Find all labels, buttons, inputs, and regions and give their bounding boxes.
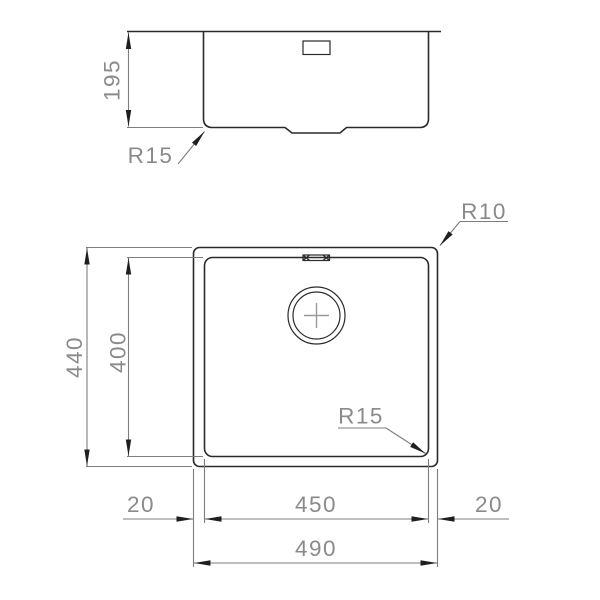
sink-technical-drawing: 195 R15 440 — [0, 0, 600, 600]
dim-right-margin: 20 — [438, 492, 509, 519]
plan-outer-radius-callout: R10 — [440, 199, 508, 246]
dim-inner-height-label: 400 — [105, 331, 130, 373]
dim-inner-height: 400 — [105, 258, 203, 457]
plan-inner-radius-label: R15 — [338, 404, 384, 429]
side-corner-radius-label: R15 — [128, 143, 174, 168]
plan-inner-radius-callout: R15 — [338, 404, 426, 454]
dim-inner-width-label: 450 — [295, 492, 337, 517]
plan-inner-radius-leader — [386, 428, 426, 454]
side-bowl-outline — [204, 32, 429, 134]
dim-left-margin-label: 20 — [127, 492, 155, 517]
dim-depth-label: 195 — [99, 59, 124, 101]
drawing-canvas: 195 R15 440 — [0, 0, 600, 600]
dim-outer-width-label: 490 — [295, 536, 337, 561]
dim-inner-width: 450 — [205, 492, 428, 519]
dim-outer-height-label: 440 — [62, 336, 87, 378]
dim-outer-width: 490 — [194, 536, 437, 563]
side-overflow-rect — [303, 41, 330, 55]
side-corner-radius-callout: R15 — [128, 132, 205, 169]
plan-outer-rect — [194, 248, 438, 467]
dim-right-margin-label: 20 — [475, 492, 503, 517]
side-view: 195 R15 — [99, 32, 441, 169]
drain-center-cross-icon — [304, 303, 329, 328]
side-corner-radius-leader — [178, 132, 205, 165]
plan-outer-radius-leader — [440, 222, 460, 246]
dim-left-margin: 20 — [123, 492, 193, 519]
dim-depth: 195 — [99, 33, 203, 128]
plan-outer-radius-label: R10 — [461, 199, 507, 224]
plan-view: 440 400 450 20 20 490 — [62, 199, 509, 567]
